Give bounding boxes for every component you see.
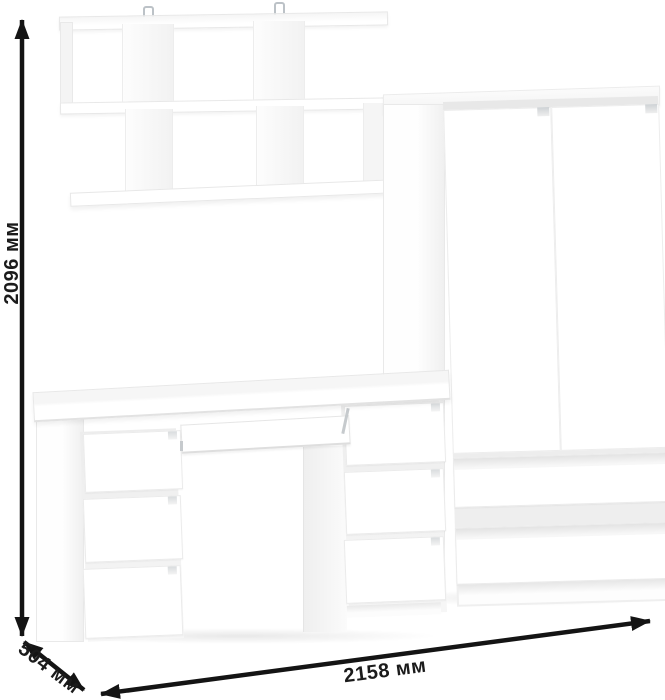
dimension-arrows bbox=[0, 0, 665, 700]
furniture-dimension-diagram: 2096 мм 504 мм 2158 мм bbox=[0, 0, 665, 700]
height-dimension-label: 2096 мм bbox=[1, 219, 23, 307]
